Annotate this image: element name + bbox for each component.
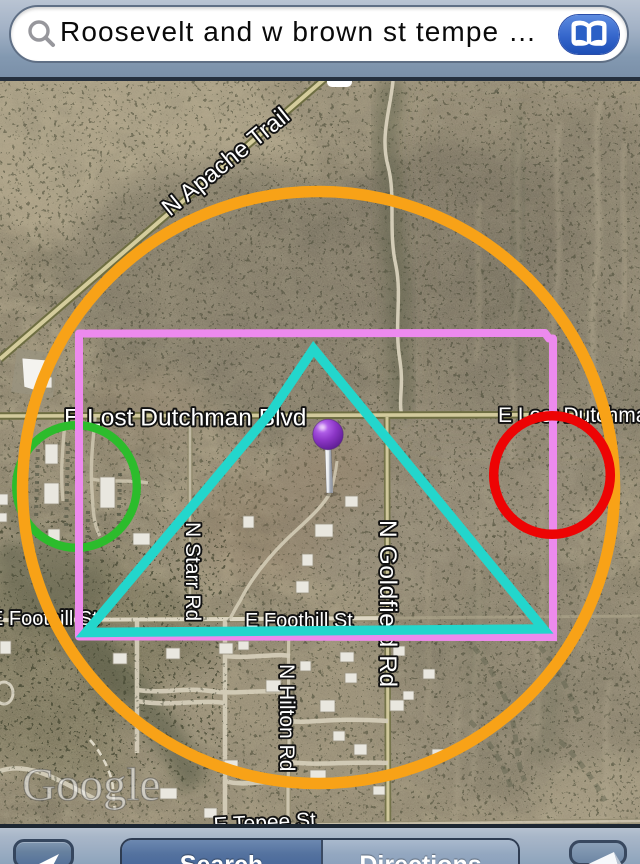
svg-text:Google: Google (22, 759, 160, 811)
svg-text:N Hilton Rd: N Hilton Rd (275, 664, 298, 771)
svg-text:N Starr Rd: N Starr Rd (181, 522, 204, 621)
svg-text:N Goldfield Rd: N Goldfield Rd (374, 520, 401, 688)
